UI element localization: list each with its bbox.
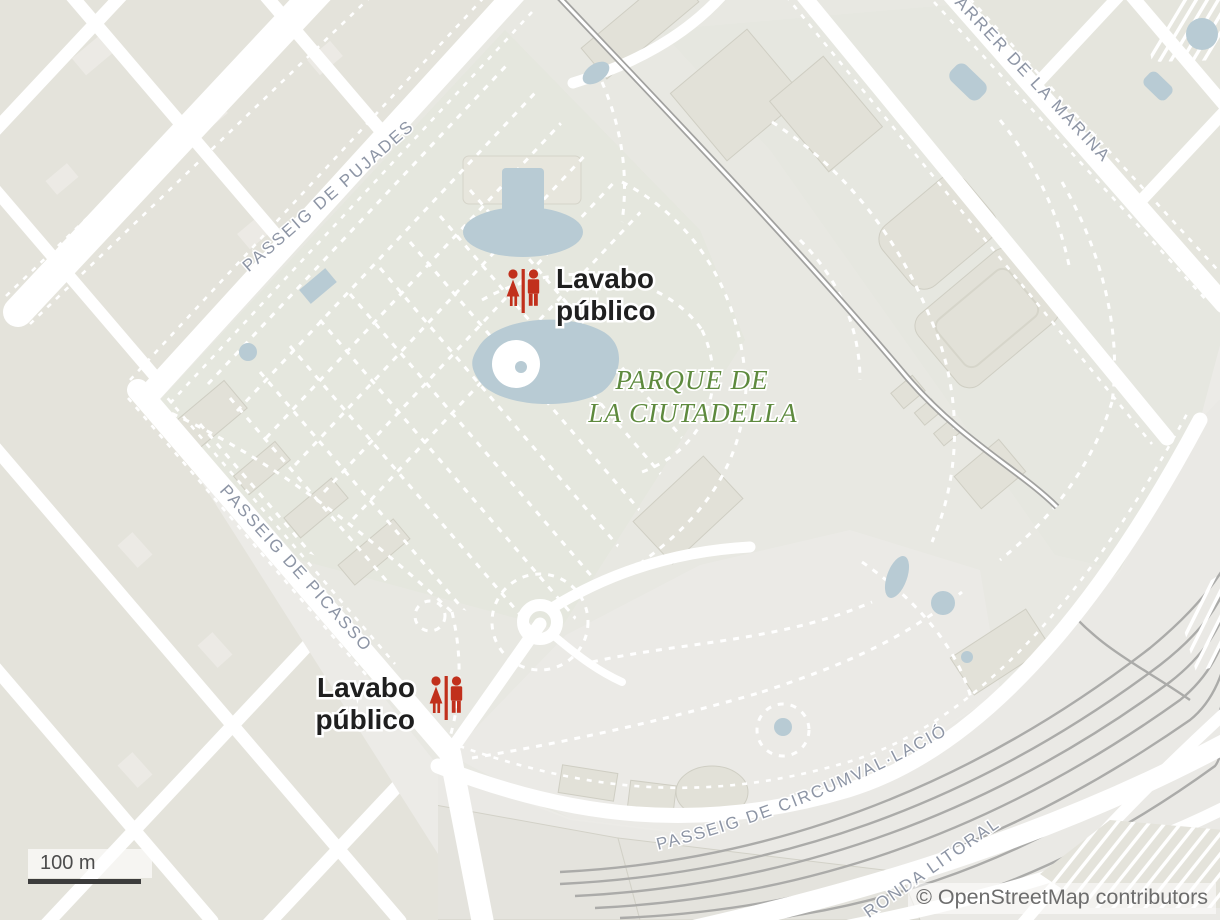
svg-text:LA CIUTADELLA: LA CIUTADELLA xyxy=(587,398,797,428)
scale-bar-label: 100 m xyxy=(28,849,152,878)
attribution-link[interactable]: © OpenStreetMap contributors xyxy=(916,885,1208,909)
map[interactable]: PASSEIG DE PUJADES CARRER DE LA MARINA P… xyxy=(0,0,1220,920)
scale-bar: 100 m xyxy=(28,849,152,884)
svg-text:PARQUE DE: PARQUE DE xyxy=(614,365,768,395)
map-attribution: © OpenStreetMap contributors xyxy=(908,883,1216,914)
marker-label: público xyxy=(315,704,415,735)
marker-label: Lavabo xyxy=(556,263,654,294)
scale-bar-rule xyxy=(28,879,141,884)
marker-label: público xyxy=(556,295,656,326)
marker-label: Lavabo xyxy=(317,672,415,703)
map-canvas[interactable]: PASSEIG DE PUJADES CARRER DE LA MARINA P… xyxy=(0,0,1220,920)
